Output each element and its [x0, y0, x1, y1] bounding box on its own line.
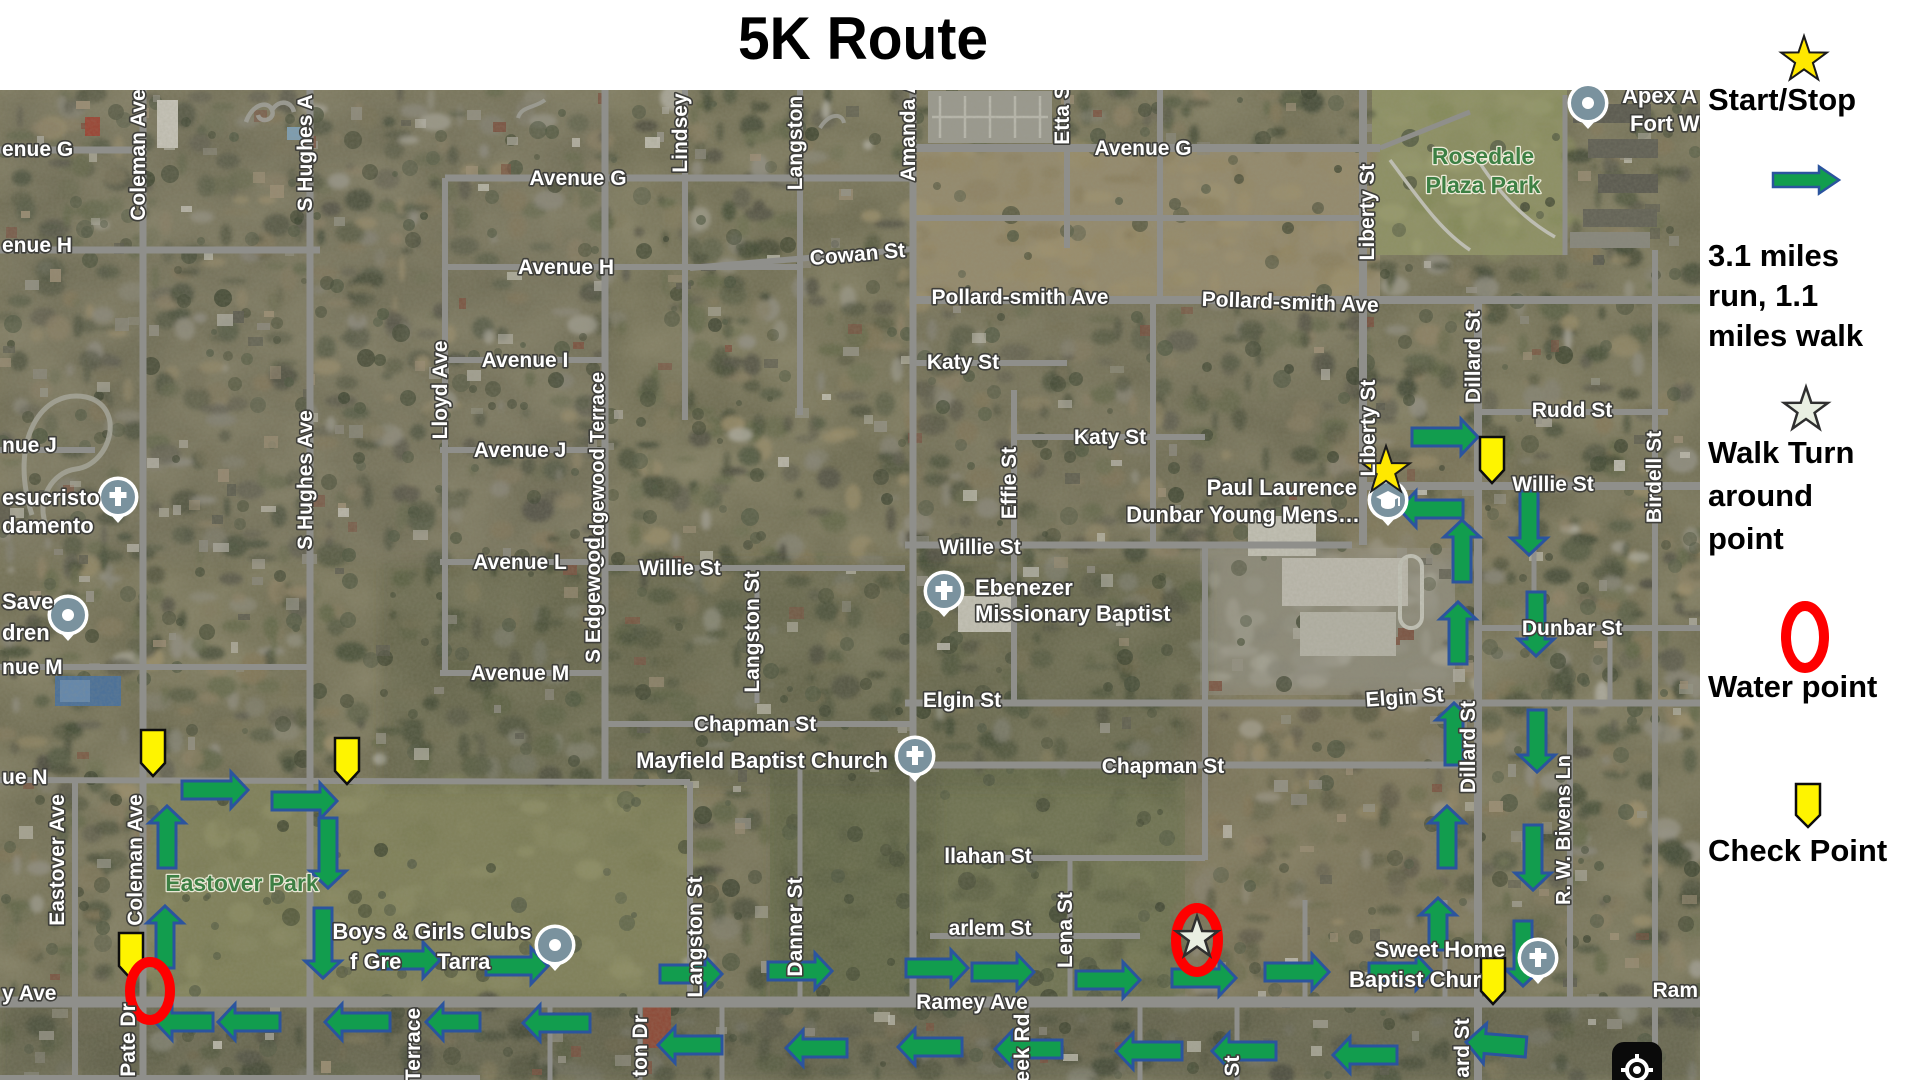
svg-text:Rudd St: Rudd St [1532, 399, 1612, 422]
svg-text:nue M: nue M [2, 656, 63, 679]
svg-text:Liberty St: Liberty St [1357, 380, 1380, 477]
svg-text:Lloyd Ave: Lloyd Ave [429, 341, 452, 440]
svg-text:Dunbar St: Dunbar St [1522, 617, 1622, 640]
svg-text:Langston St: Langston St [684, 876, 707, 997]
svg-text:f Gre: f Gre [350, 949, 401, 974]
svg-text:ue N: ue N [2, 766, 48, 789]
svg-text:R. W. Bivens Ln: R. W. Bivens Ln [1553, 755, 1575, 905]
svg-text:Katy St: Katy St [927, 351, 999, 374]
svg-text:Save: Save [2, 589, 53, 614]
svg-text:Pollard-smith Ave: Pollard-smith Ave [932, 286, 1109, 309]
svg-text:S Hughes Ave: S Hughes Ave [294, 410, 317, 550]
svg-text:S Edgewood: S Edgewood [582, 537, 605, 663]
svg-text:Willie St: Willie St [639, 557, 721, 580]
svg-text:St: St [1221, 1055, 1244, 1076]
svg-text:Avenue M: Avenue M [471, 662, 569, 685]
svg-text:Chapman St: Chapman St [694, 713, 817, 736]
svg-text:Birdell St: Birdell St [1643, 431, 1666, 523]
svg-text:5K Route: 5K Route [738, 5, 988, 72]
svg-text:nue J: nue J [2, 434, 57, 457]
svg-text:Coleman Ave: Coleman Ave [124, 794, 147, 926]
svg-text:miles walk: miles walk [1708, 318, 1864, 353]
svg-text:Mayfield Baptist Church: Mayfield Baptist Church [636, 748, 888, 773]
svg-text:point: point [1708, 521, 1784, 556]
svg-text:Ebenezer: Ebenezer [975, 575, 1073, 600]
svg-text:Avenue H: Avenue H [518, 256, 614, 279]
svg-text:Boys & Girls Clubs: Boys & Girls Clubs [332, 919, 531, 944]
svg-text:Avenue J: Avenue J [474, 439, 567, 462]
svg-text:Danner St: Danner St [784, 877, 807, 976]
svg-text:Langston St: Langston St [741, 571, 764, 692]
svg-text:Elgin St: Elgin St [923, 689, 1001, 712]
svg-text:Eastover Ave: Eastover Ave [46, 794, 69, 926]
svg-text:Avenue L: Avenue L [473, 551, 567, 574]
svg-text:Check Point: Check Point [1708, 833, 1887, 868]
svg-text:Ramey Ave: Ramey Ave [916, 991, 1028, 1014]
svg-text:Tarra: Tarra [437, 949, 491, 974]
svg-text:Coleman Ave: Coleman Ave [127, 89, 150, 221]
svg-text:Plaza Park: Plaza Park [1425, 172, 1540, 198]
svg-text:Willie St: Willie St [1512, 473, 1594, 496]
svg-text:Baptist Chur: Baptist Chur [1349, 967, 1481, 992]
svg-text:Water point: Water point [1708, 669, 1877, 704]
svg-text:eek Rd: eek Rd [1011, 1014, 1034, 1080]
svg-text:Liberty St: Liberty St [1356, 164, 1379, 261]
svg-text:esucristo: esucristo [2, 485, 100, 510]
svg-text:Sweet Home: Sweet Home [1375, 937, 1506, 962]
svg-text:Chapman St: Chapman St [1102, 755, 1225, 778]
svg-text:Pate Dr: Pate Dr [117, 1003, 140, 1077]
svg-text:dren: dren [2, 620, 50, 645]
svg-text:3.1 miles: 3.1 miles [1708, 238, 1839, 273]
svg-text:Willie St: Willie St [939, 536, 1021, 559]
svg-text:Rosedale: Rosedale [1432, 143, 1534, 169]
svg-text:enue H: enue H [2, 234, 72, 257]
svg-text:llahan St: llahan St [944, 845, 1032, 868]
svg-text:Amanda A: Amanda A [897, 78, 920, 181]
svg-text:Dunbar Young Mens…: Dunbar Young Mens… [1126, 502, 1360, 527]
svg-text:Avenue G: Avenue G [1094, 137, 1191, 160]
svg-text:Paul Laurence: Paul Laurence [1207, 475, 1357, 500]
svg-text:ard St: ard St [1451, 1018, 1474, 1078]
svg-text:Avenue G: Avenue G [529, 167, 626, 190]
svg-text:Eastover Park: Eastover Park [165, 870, 319, 896]
svg-text:Lena St: Lena St [1054, 892, 1077, 968]
svg-text:Avenue I: Avenue I [482, 349, 569, 372]
svg-text:Effie St: Effie St [998, 447, 1021, 519]
svg-text:enue G: enue G [2, 138, 73, 161]
svg-text:run, 1.1: run, 1.1 [1708, 278, 1818, 313]
svg-text:y Ave: y Ave [2, 982, 56, 1005]
svg-text:Dillard St: Dillard St [1462, 311, 1485, 403]
svg-text:Lindsey: Lindsey [669, 93, 692, 173]
svg-text:Etta S: Etta S [1051, 85, 1074, 145]
svg-text:arlem St: arlem St [949, 917, 1032, 940]
svg-text:Langston: Langston [784, 96, 807, 191]
svg-text:ton Dr: ton Dr [629, 1015, 652, 1077]
svg-text:Terrace: Terrace [402, 1008, 425, 1080]
svg-text:around: around [1708, 478, 1813, 513]
svg-text:S Hughes A: S Hughes A [294, 94, 317, 211]
svg-text:Dillard St: Dillard St [1457, 701, 1480, 793]
svg-text:Start/Stop: Start/Stop [1708, 82, 1856, 117]
svg-text:Missionary Baptist: Missionary Baptist [975, 601, 1171, 626]
svg-text:Katy St: Katy St [1074, 426, 1146, 449]
svg-text:damento: damento [2, 513, 94, 538]
svg-text:Walk Turn: Walk Turn [1708, 435, 1854, 470]
svg-text:Ram: Ram [1652, 979, 1698, 1002]
